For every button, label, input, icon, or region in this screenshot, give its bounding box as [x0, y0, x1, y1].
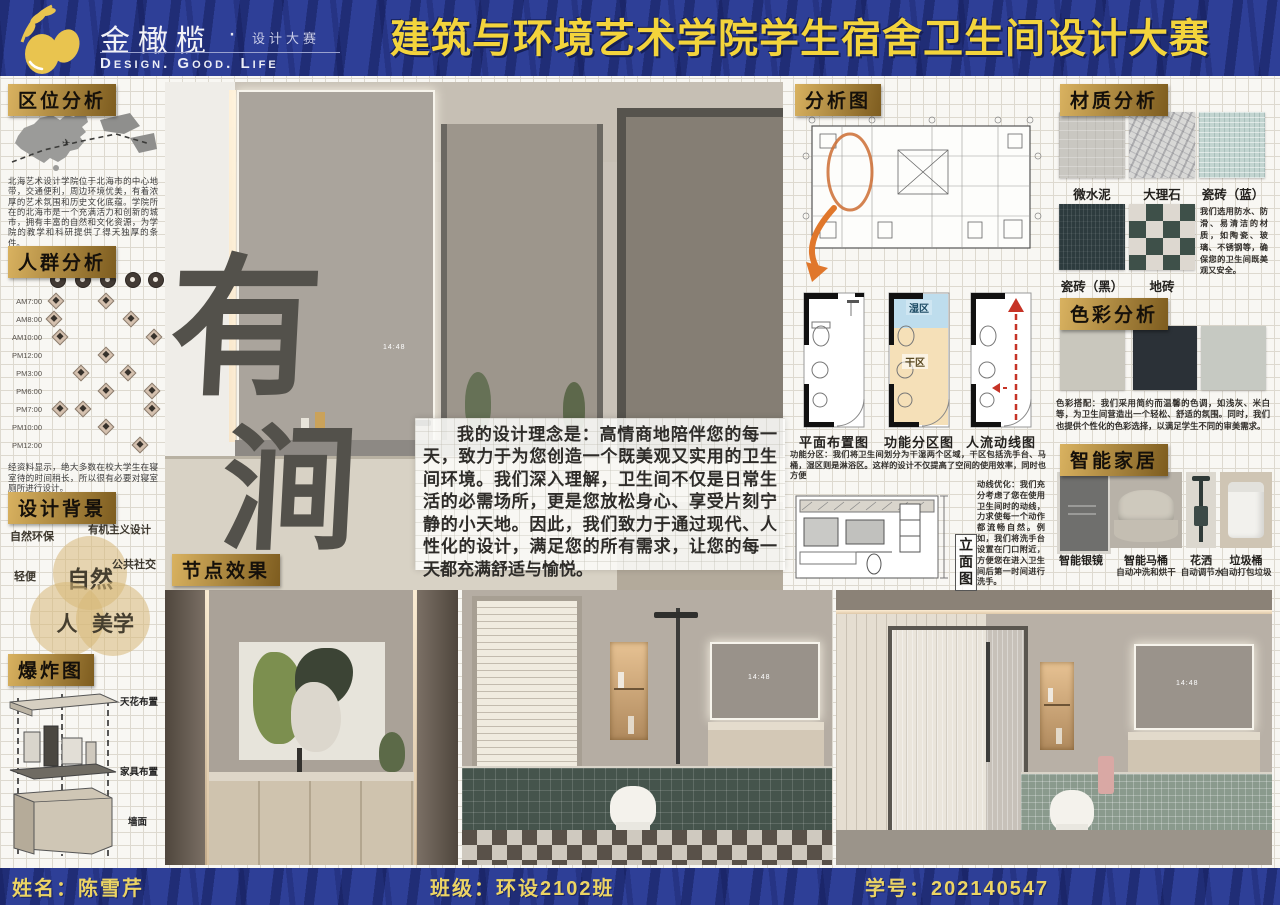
china-map: ✈	[4, 106, 162, 174]
section-title-exploded: 爆炸图	[8, 654, 94, 686]
material-label: 瓷砖（黑）	[1053, 276, 1131, 295]
section-title-background: 设计背景	[8, 492, 116, 524]
plane-icon: ✈	[62, 138, 70, 149]
logo-underline	[100, 52, 340, 53]
background-label-light: 轻便	[14, 568, 36, 584]
section-title-colors: 色彩分析	[1060, 298, 1168, 330]
exploded-label-ceiling: 天花布置	[120, 694, 158, 708]
section-title-materials: 材质分析	[1060, 84, 1168, 116]
logo-separator-dot: ·	[228, 20, 236, 48]
smart-trashbin-image	[1220, 472, 1272, 548]
location-body: 北海艺术设计学院位于北海市的中心地带，交通便利，周边环境优美，有着浓厚的艺术氛围…	[8, 176, 158, 248]
time-label: PM12:00	[4, 441, 42, 450]
exploded-label-wall: 墙面	[128, 814, 147, 828]
section-title-location: 区位分析	[8, 84, 116, 116]
circulation-body: 动线优化：我们充分考虑了您在使用卫生间时的动线，力求使每一个动作都流畅自然。例如…	[977, 480, 1045, 588]
smart-item-name: 智能银镜	[1057, 552, 1105, 568]
material-swatch-floor-tile	[1129, 204, 1195, 270]
logo-subtitle: 设计大赛	[252, 28, 320, 47]
smart-item-desc: 自动打包垃圾	[1220, 566, 1272, 578]
colors-body: 色彩搭配：我们采用简约而温馨的色调，如浅灰、米白等，为卫生间营造出一个轻松、舒适…	[1056, 398, 1270, 432]
dry-zone-label: 干区	[902, 354, 928, 369]
poster-title: 建筑与环境艺术学院学生宿舍卫生间设计大赛	[355, 10, 1245, 68]
golden-olive-logo-icon	[8, 2, 98, 74]
design-philosophy-text: 我的设计理念是：高情商地陪伴您的每一天，致力于为您创造一个既美观又实用的卫生间环…	[415, 418, 785, 570]
time-label: AM8:00	[4, 315, 42, 324]
mirror-clock: 14:48	[1176, 680, 1199, 687]
node-render-vanity	[165, 590, 458, 865]
material-swatch-marble	[1129, 112, 1195, 178]
exploded-view-drawing	[4, 686, 122, 864]
time-label: PM12:00	[4, 351, 42, 360]
poster: 金橄榄 · 设计大赛 Design. Good. Life 建筑与环境艺术学院学…	[0, 0, 1280, 905]
author-class: 班级：环设2102班	[430, 872, 615, 901]
zoning-body: 功能分区：我们将卫生间划分为干湿两个区域，干区包括洗手台、马桶，湿区则是淋浴区。…	[790, 450, 1046, 482]
section-title-population: 人群分析	[8, 246, 116, 278]
plan-label-circulation: 人流动线图	[953, 432, 1049, 451]
floor-plan-drawing	[798, 110, 1045, 302]
background-label-eco: 自然环保	[10, 528, 54, 544]
material-swatch-microcement	[1059, 112, 1125, 178]
design-background-venn: 自然 人 美学	[30, 536, 150, 658]
section-title-analysis: 分析图	[795, 84, 881, 116]
sport-activity-icon	[148, 272, 164, 288]
shower-pipe	[676, 608, 680, 764]
wet-zone-label: 湿区	[906, 300, 932, 315]
activity-marker-icon	[146, 329, 163, 346]
activity-marker-icon	[98, 383, 115, 400]
population-timeline-chart: AM7:00 AM8:00 AM10:00 PM12:00 PM3:00 PM6…	[4, 272, 162, 462]
activity-marker-icon	[144, 383, 161, 400]
time-label: PM6:00	[4, 387, 42, 396]
mirror-clock: 14:48	[748, 674, 771, 681]
time-label: AM10:00	[4, 333, 42, 342]
background-label-organic: 有机主义设计	[88, 522, 151, 537]
activity-marker-icon	[73, 365, 90, 382]
material-label: 大理石	[1132, 184, 1192, 203]
materials-body: 我们选用防水、防滑、易清洁的材质，如陶瓷、玻璃、不锈钢等，确保您的卫生间既美观又…	[1200, 206, 1268, 277]
activity-marker-icon	[144, 401, 161, 418]
calligraphy-char-2: 涧	[218, 422, 361, 558]
bottom-banner	[0, 868, 1280, 905]
color-swatch-2	[1133, 326, 1197, 390]
logo-slogan: Design. Good. Life	[100, 55, 279, 72]
led-mirror	[712, 644, 818, 718]
activity-marker-icon	[120, 365, 137, 382]
activity-marker-icon	[52, 401, 69, 418]
activity-marker-icon	[48, 293, 65, 310]
material-swatch-black-tile	[1059, 204, 1125, 270]
activity-marker-icon	[46, 311, 63, 328]
smart-mirror-image	[1057, 472, 1111, 554]
wall-art	[239, 642, 385, 760]
activity-marker-icon	[98, 419, 115, 436]
outdoor-activity-icon	[125, 272, 141, 288]
section-title-nodes: 节点效果	[172, 554, 280, 586]
activity-marker-icon	[98, 347, 115, 364]
smart-shower-image	[1186, 472, 1216, 548]
elevation-drawing	[792, 486, 952, 586]
node-render-glass-shower: 14:48	[836, 590, 1272, 865]
top-banner: 金橄榄 · 设计大赛 Design. Good. Life 建筑与环境艺术学院学…	[0, 0, 1280, 76]
calligraphy-char-1: 有	[166, 252, 326, 404]
exploded-label-furniture: 家具布置	[120, 764, 158, 778]
window-blinds	[472, 596, 582, 774]
shower-pipe	[986, 642, 990, 762]
background-label-social: 公共社交	[112, 556, 156, 572]
color-swatch-1	[1060, 326, 1125, 390]
time-label: PM10:00	[4, 423, 42, 432]
material-label: 微水泥	[1062, 184, 1122, 203]
smart-toilet-image	[1110, 472, 1182, 548]
glass-shower-partition	[888, 626, 1028, 846]
plan-layout-diagram	[803, 292, 865, 433]
node-render-shower: 14:48	[462, 590, 832, 865]
material-label: 地砖	[1136, 276, 1188, 295]
author-student-id: 学号：202140547	[865, 872, 1049, 901]
activity-marker-icon	[123, 311, 140, 328]
mirror-clock: 14:48	[383, 344, 406, 351]
author-name: 姓名：陈雪芹	[12, 872, 144, 901]
led-mirror	[1136, 646, 1252, 728]
material-swatch-blue-tile	[1199, 112, 1265, 178]
color-swatch-3	[1201, 326, 1266, 390]
activity-marker-icon	[132, 437, 149, 454]
shower-head	[654, 612, 698, 618]
plan-circulation-diagram	[970, 292, 1032, 433]
plant	[379, 732, 405, 772]
activity-marker-icon	[52, 329, 69, 346]
plan-label-layout: 平面布置图	[786, 432, 882, 451]
pink-towel	[1098, 756, 1114, 794]
time-label: AM7:00	[4, 297, 42, 306]
venn-circle-aesthetics: 美学	[76, 582, 150, 656]
elevation-label: 立面图	[955, 534, 977, 591]
smart-item-desc: 自动冲洗和烘干	[1110, 566, 1182, 578]
faucet	[297, 748, 302, 772]
material-label: 瓷砖（蓝）	[1194, 184, 1272, 203]
time-label: PM3:00	[4, 369, 42, 378]
activity-marker-icon	[98, 293, 115, 310]
plan-zoning-diagram: 湿区 干区	[888, 292, 950, 433]
logo-name: 金橄榄	[100, 16, 214, 60]
activity-marker-icon	[75, 401, 92, 418]
time-label: PM7:00	[4, 405, 42, 414]
section-title-smart-home: 智能家居	[1060, 444, 1168, 476]
population-body: 经资料显示，绝大多数在校大学生在寝室待的时间稍长，所以很有必要对寝室厕所进行设计…	[8, 462, 158, 494]
exploded-view-diagram: 天花布置 家具布置 墙面	[4, 686, 164, 864]
